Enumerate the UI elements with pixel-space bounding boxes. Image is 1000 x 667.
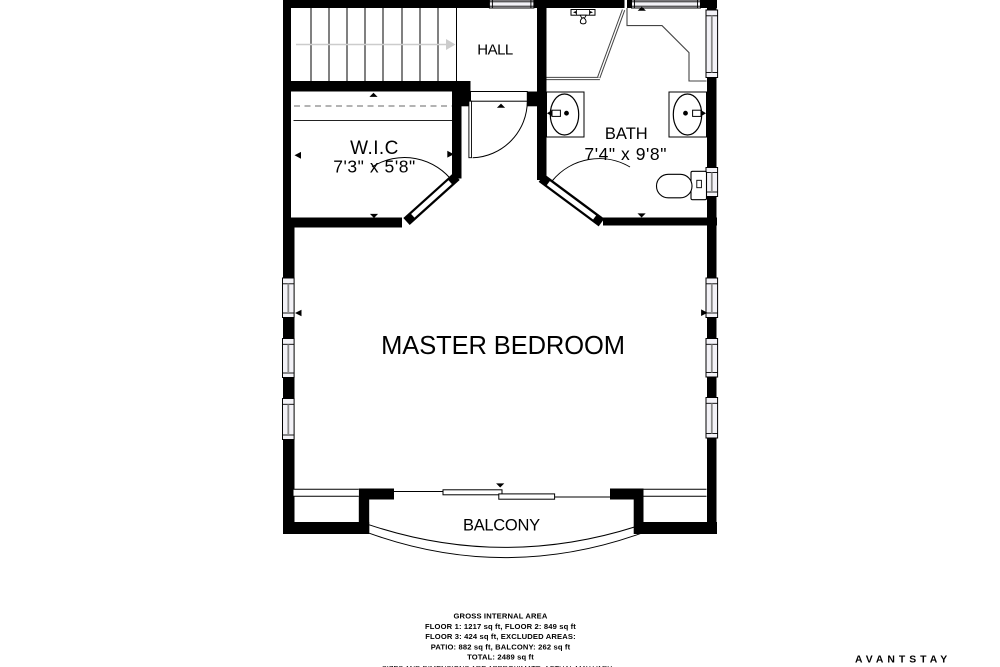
svg-text:BATH: BATH [605,125,648,143]
svg-text:7'4" x 9'8": 7'4" x 9'8" [584,144,667,164]
svg-text:MASTER BEDROOM: MASTER BEDROOM [381,332,625,360]
svg-text:HALL: HALL [477,41,513,58]
svg-text:BALCONY: BALCONY [463,516,540,534]
svg-text:FLOOR 1: 1217 sq ft, FLOOR 2:: FLOOR 1: 1217 sq ft, FLOOR 2: 849 sq ft [425,622,576,631]
svg-text:GROSS INTERNAL AREA: GROSS INTERNAL AREA [454,612,548,621]
svg-text:PATIO: 882 sq ft, BALCONY: 262: PATIO: 882 sq ft, BALCONY: 262 sq ft [431,643,571,652]
svg-text:7'3" x 5'8": 7'3" x 5'8" [333,157,416,177]
svg-text:FLOOR 3: 424 sq ft, EXCLUDED A: FLOOR 3: 424 sq ft, EXCLUDED AREAS: [425,632,576,641]
svg-text:AVANTSTAY: AVANTSTAY [855,655,951,666]
svg-text:TOTAL: 2489 sq ft: TOTAL: 2489 sq ft [467,652,534,661]
